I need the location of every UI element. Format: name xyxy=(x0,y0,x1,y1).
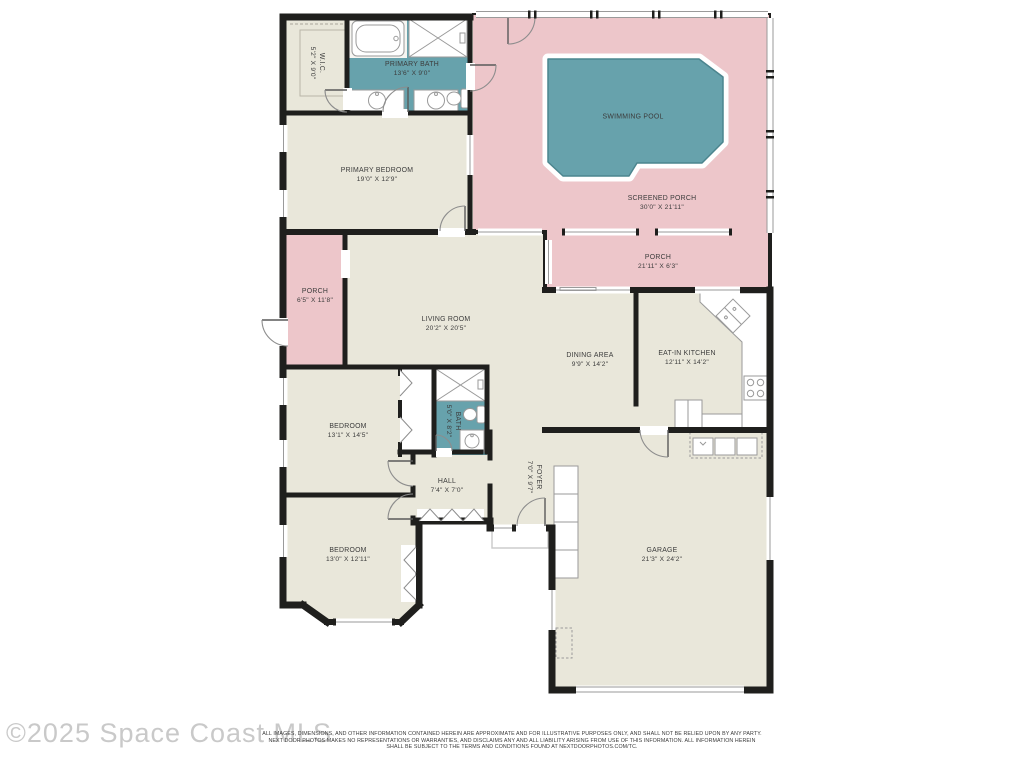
room-label-bedroom-2: BEDROOM13'0" X 12'11" xyxy=(326,546,370,564)
refrigerator-icon xyxy=(675,400,702,428)
room-label-dining-area: DINING AREA9'9" X 14'2" xyxy=(566,351,613,369)
room-label-bath: BATH5'0" X 8'2" xyxy=(444,405,462,438)
room-label-primary-bath: PRIMARY BATH13'6" X 9'0" xyxy=(385,60,439,78)
shower-icon xyxy=(409,19,467,57)
window xyxy=(695,287,740,294)
room-label-foyer: FOYER7'0" X 9'7" xyxy=(525,461,543,494)
window xyxy=(767,497,774,560)
sliding-door xyxy=(556,287,630,294)
window xyxy=(280,440,288,467)
window xyxy=(280,190,288,217)
room-label-hall: HALL7'4" X 7'0" xyxy=(431,477,464,495)
room-label-swimming-pool: SWIMMING POOL xyxy=(602,113,663,122)
window xyxy=(549,590,556,630)
stove-icon xyxy=(744,376,767,400)
shower-icon xyxy=(436,369,485,401)
window xyxy=(545,240,552,284)
disclaimer-line: ALL IMAGES, DIMENSIONS, AND OTHER INFORM… xyxy=(252,731,772,738)
room-label-bedroom-1: BEDROOM13'1" X 14'5" xyxy=(328,422,369,440)
room-label-porch-left: PORCH6'5" X 11'8" xyxy=(297,287,333,305)
window xyxy=(280,125,288,152)
counter-segment xyxy=(702,414,742,428)
bathtub-icon xyxy=(352,21,404,56)
storage-shelves-icon xyxy=(554,466,578,578)
window xyxy=(280,378,288,405)
window xyxy=(494,525,512,532)
disclaimer-text: ALL IMAGES, DIMENSIONS, AND OTHER INFORM… xyxy=(252,731,772,751)
room-label-eat-in-kitchen: EAT-IN KITCHEN12'11" X 14'2" xyxy=(658,349,715,367)
bay-window xyxy=(333,619,395,626)
room-label-porch-rear: PORCH21'11" X 6'3" xyxy=(638,253,678,271)
window xyxy=(467,135,474,175)
room-label-garage: GARAGE21'3" X 24'2" xyxy=(642,546,683,564)
room-label-primary-bedroom: PRIMARY BEDROOM19'0" X 12'9" xyxy=(341,166,413,184)
garage-door xyxy=(576,686,744,694)
window xyxy=(280,525,288,557)
floor-plan-drawing xyxy=(0,0,1024,768)
room-label-living-room: LIVING ROOM20'2" X 20'5" xyxy=(422,315,471,333)
sink-icon xyxy=(460,430,484,452)
window xyxy=(478,229,542,236)
disclaimer-line: SHALL BE SUBJECT TO THE TERMS AND CONDIT… xyxy=(252,744,772,751)
room-label-wic: W.I.C.5'2" X 9'0" xyxy=(308,47,326,80)
floor-plan-page: W.I.C.5'2" X 9'0" PRIMARY BATH13'6" X 9'… xyxy=(0,0,1024,768)
sink-icon xyxy=(350,90,404,112)
room-label-screened-porch: SCREENED PORCH30'0" X 21'11" xyxy=(628,194,697,212)
disclaimer-line: NEXT DOOR PHOTOS MAKES NO REPRESENTATION… xyxy=(252,738,772,745)
